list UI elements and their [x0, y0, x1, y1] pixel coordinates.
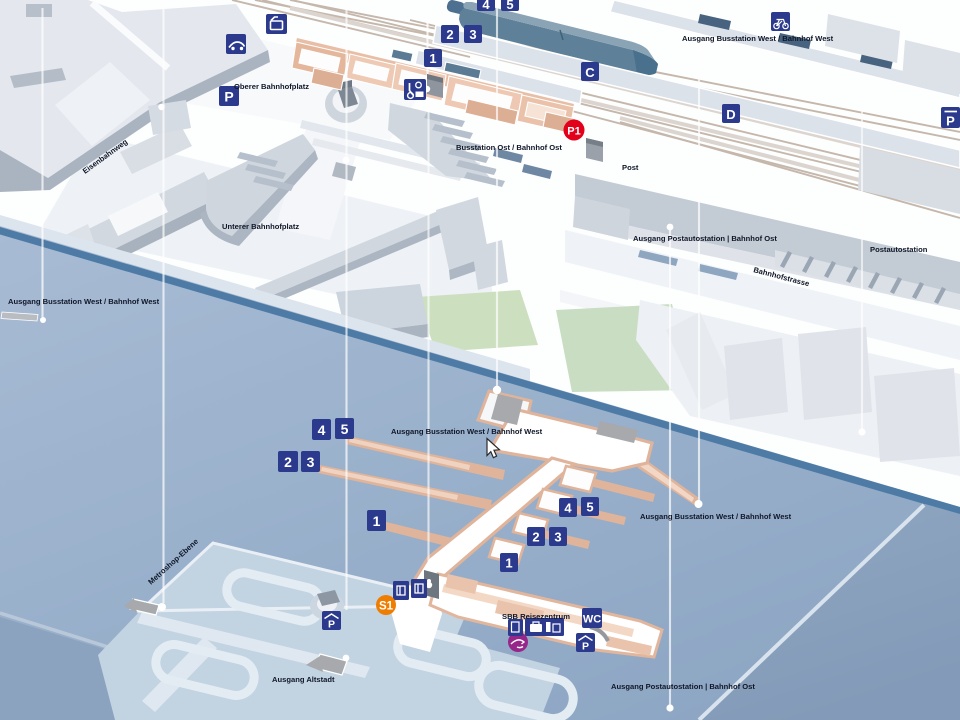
svg-text:Ausgang Busstation West / Bahn: Ausgang Busstation West / Bahnhof West	[391, 427, 543, 436]
svg-text:5: 5	[506, 0, 513, 12]
svg-text:Postautostation: Postautostation	[870, 245, 928, 254]
svg-text:WC: WC	[583, 614, 601, 626]
svg-text:4: 4	[318, 422, 326, 438]
svg-text:2: 2	[284, 454, 292, 470]
svg-text:Post: Post	[622, 163, 639, 172]
svg-text:C: C	[585, 65, 595, 80]
svg-text:S1: S1	[379, 601, 394, 613]
svg-text:Oberer Bahnhofplatz: Oberer Bahnhofplatz	[234, 82, 309, 91]
svg-text:Unterer Bahnhofplatz: Unterer Bahnhofplatz	[222, 222, 299, 231]
svg-text:4: 4	[482, 0, 490, 12]
svg-text:1: 1	[429, 51, 436, 66]
svg-text:4: 4	[564, 501, 572, 516]
svg-text:3: 3	[554, 530, 561, 545]
svg-text:Ausgang Busstation West / Bahn: Ausgang Busstation West / Bahnhof West	[8, 297, 160, 306]
svg-text:5: 5	[341, 421, 349, 437]
svg-text:3: 3	[469, 27, 476, 42]
svg-text:2: 2	[532, 530, 539, 545]
svg-text:3: 3	[307, 454, 315, 470]
svg-text:P: P	[946, 114, 955, 129]
svg-text:5: 5	[586, 500, 593, 515]
svg-text:1: 1	[505, 556, 512, 571]
svg-text:P: P	[582, 641, 589, 653]
svg-text:2: 2	[446, 27, 453, 42]
svg-text:Ausgang Busstation West / Bahn: Ausgang Busstation West / Bahnhof West	[640, 512, 792, 521]
svg-text:D: D	[726, 107, 735, 122]
svg-text:Ausgang Postautostation | Bahn: Ausgang Postautostation | Bahnhof Ost	[611, 682, 755, 691]
svg-text:P1: P1	[567, 126, 580, 138]
svg-text:Ausgang Postautostation | Bahn: Ausgang Postautostation | Bahnhof Ost	[633, 234, 777, 243]
svg-text:1: 1	[373, 513, 381, 529]
svg-text:Ausgang Altstadt: Ausgang Altstadt	[272, 675, 335, 684]
svg-text:P: P	[328, 619, 335, 631]
svg-text:P: P	[224, 89, 233, 105]
svg-text:Ausgang Busstation West / Bahn: Ausgang Busstation West / Bahnhof West	[682, 34, 834, 43]
svg-text:SBB Reisezentrum: SBB Reisezentrum	[502, 612, 570, 621]
svg-text:Busstation Ost / Bahnhof Ost: Busstation Ost / Bahnhof Ost	[456, 143, 562, 152]
